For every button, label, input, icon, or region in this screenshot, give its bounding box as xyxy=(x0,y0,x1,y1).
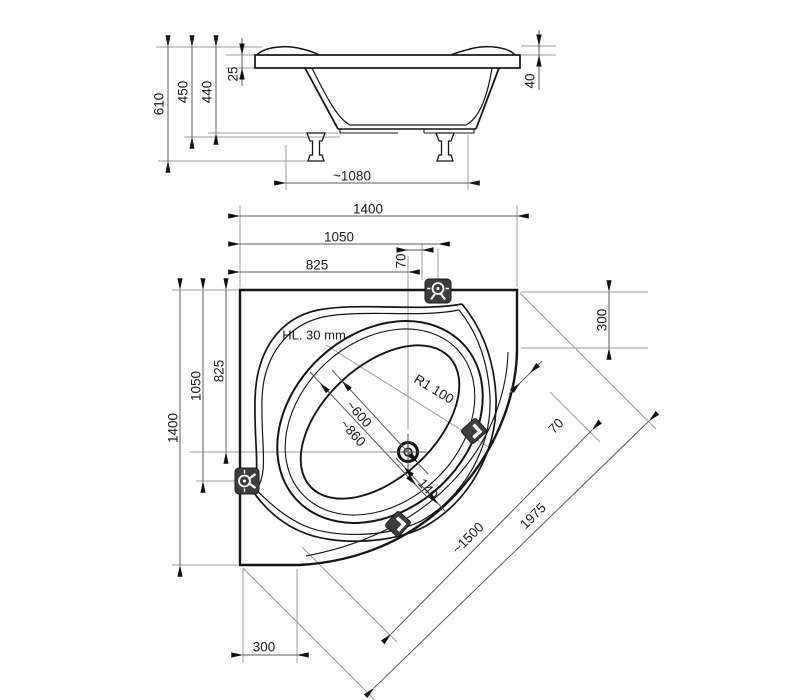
plan-view: 1400 1050 825 70 1400 1050 825 300 300 1… xyxy=(166,202,657,700)
bathtub-side-outline xyxy=(255,47,520,161)
dim-right-edge-label: 300 xyxy=(595,309,610,332)
dim-faucet-offset-label: 70 xyxy=(394,253,409,268)
dim-height-frame-label: 450 xyxy=(176,81,191,104)
side-elevation-view: 610 450 440 25 40 ~1080 xyxy=(152,30,557,190)
side-jet-fitting-icon xyxy=(235,468,259,494)
rim-hump-left xyxy=(257,47,319,55)
dim-total-height-label: 610 xyxy=(152,93,167,116)
rim-bar xyxy=(255,55,520,68)
dim-feet-span-label: ~1080 xyxy=(333,169,371,184)
dim-depth-drain-label: 825 xyxy=(212,360,227,383)
adjustable-foot-right xyxy=(436,133,454,161)
headrest-note-label: HL. 30 mm xyxy=(282,328,346,343)
technical-drawing-page: 610 450 440 25 40 ~1080 xyxy=(0,0,803,700)
dim-depth-total-label: 1400 xyxy=(166,413,181,443)
dim-corner-radius-label: R1 100 xyxy=(411,371,456,406)
well-surround-curve-inner xyxy=(256,310,490,534)
dim-width-faucet-label: 1050 xyxy=(324,230,354,245)
dim-width-total-label: 1400 xyxy=(353,202,383,217)
dim-diagonal-overall-label: 1975 xyxy=(517,500,549,532)
dim-width-drain-label: 825 xyxy=(306,258,329,273)
dim-height-shell-label: 440 xyxy=(200,81,215,104)
tub-wall-left xyxy=(305,68,338,129)
side-view-dimensions: 610 450 440 25 40 ~1080 xyxy=(152,30,542,184)
bathtub-technical-drawing: 610 450 440 25 40 ~1080 xyxy=(0,0,803,700)
tub-wall-right xyxy=(476,68,499,129)
dim-rim-lip-label: 25 xyxy=(226,66,241,81)
faucet-fitting-icon xyxy=(425,279,451,303)
dim-diagonal-offset-label: 70 xyxy=(545,415,566,436)
dim-bottom-edge-label: 300 xyxy=(253,640,276,655)
dim-diagonal-front-label: ~1500 xyxy=(449,519,486,556)
rim-hump-right xyxy=(451,47,515,55)
dim-depth-jet-label: 1050 xyxy=(189,371,204,401)
dim-rim-edge-label: 40 xyxy=(523,73,538,88)
tub-inner-profile xyxy=(312,68,492,125)
dim-drain-to-wall-label: 140 xyxy=(415,476,441,503)
